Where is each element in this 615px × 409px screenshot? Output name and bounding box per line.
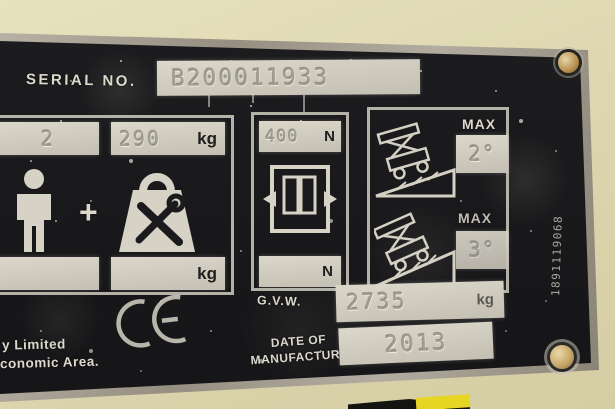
date-value: 2013 [384, 329, 448, 358]
capacity-section: 2 290 kg + kg [0, 115, 234, 295]
paint-speckles [0, 0, 2, 2]
footer-text-line1: y Limited [2, 336, 66, 352]
date-value-box: 2013 [338, 322, 493, 366]
tilt-value-box-2: 3° [456, 231, 508, 269]
paint-drip [252, 94, 254, 103]
serial-value: B200011933 [171, 64, 330, 91]
capacity-bottom-unit: kg [197, 264, 217, 284]
paint-drip [303, 95, 305, 112]
gvw-value: 2735 [346, 289, 408, 316]
rivet [550, 345, 574, 369]
capacity-value: 290 [119, 127, 161, 151]
force-unit-cell: N [259, 256, 341, 287]
tilt-value-2: 3° [468, 238, 495, 262]
force-unit: N [324, 128, 335, 145]
capacity-unit: kg [197, 129, 217, 149]
side-force-section: 400 N N [251, 112, 349, 291]
occupants-value: 2 [41, 127, 56, 151]
force-value: 400 [265, 127, 299, 147]
capacity-unit-cell: kg [111, 257, 225, 290]
gvw-label: G.V.W. [257, 293, 302, 309]
sticker-fragment-yellow [416, 394, 471, 409]
serial-value-box: B200011933 [157, 59, 420, 96]
side-force-arrows-icon [263, 163, 337, 241]
tilt-max-label-1: MAX [462, 116, 496, 132]
plus-sign: + [79, 194, 98, 231]
serial-label: SERIAL NO. [26, 71, 137, 90]
machine-on-slope-icon [374, 116, 462, 200]
tilt-max-label-2: MAX [458, 210, 492, 226]
machine-on-slope-icon [374, 204, 462, 290]
gvw-unit: kg [476, 291, 494, 308]
paint-drip [208, 95, 210, 107]
capacity-blank-cell [0, 257, 99, 290]
tilt-section: MAX 2° MAX 3° [367, 107, 509, 293]
tilt-value-box-1: 2° [456, 135, 508, 173]
force-cell: 400 N [259, 121, 341, 152]
capacity-cell: 290 kg [111, 122, 225, 155]
force-bottom-unit: N [322, 263, 333, 280]
gvw-value-box: 2735 kg [336, 281, 505, 322]
person-icon [11, 168, 57, 254]
occupants-cell: 2 [0, 122, 99, 155]
rivet [558, 52, 579, 73]
footer-text-line2: conomic Area. [0, 354, 99, 372]
tilt-value-1: 2° [468, 142, 495, 166]
photo-of-serial-plate: SERIAL NO. B200011933 2 290 kg + kg [0, 0, 615, 409]
ce-mark-icon [113, 289, 192, 355]
weight-with-tools-icon [115, 164, 199, 254]
